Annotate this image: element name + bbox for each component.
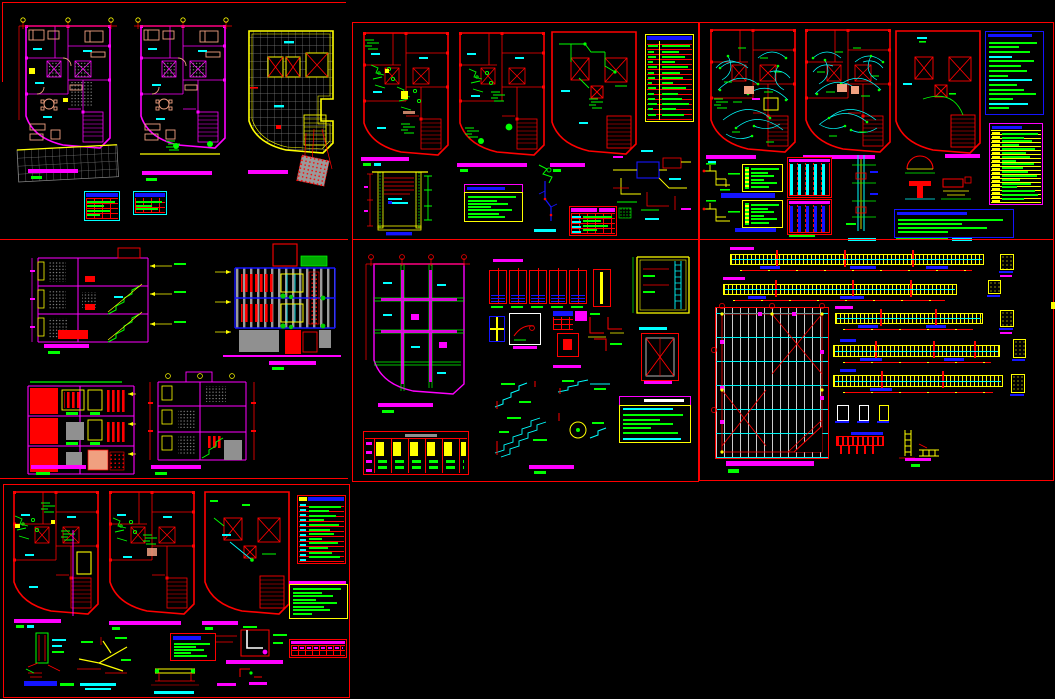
corner-reinforcement-details[interactable] <box>586 313 626 355</box>
schedule-labels-2 <box>378 466 464 469</box>
symbols-legend[interactable] <box>985 31 1044 115</box>
notes-box[interactable] <box>289 584 348 619</box>
notes-box[interactable] <box>894 209 1014 238</box>
table-cells-text <box>583 214 614 233</box>
footing-details-row[interactable] <box>489 268 609 312</box>
section-cut <box>881 371 883 388</box>
footing-caption <box>511 306 523 308</box>
drain-plan-level-1[interactable] <box>9 490 104 618</box>
isometric-riser-detail[interactable] <box>531 161 561 227</box>
table-cells <box>790 164 829 195</box>
strip-cells <box>293 647 343 649</box>
section-cut <box>776 250 778 267</box>
pad-detail[interactable] <box>557 333 579 357</box>
beam-3-title <box>835 306 853 309</box>
main-elevation[interactable] <box>215 242 343 370</box>
feeder-table-1[interactable] <box>787 157 832 198</box>
footing-detail <box>489 270 507 304</box>
plan-scale-label-2 <box>146 178 157 181</box>
framing-overlay <box>708 300 836 466</box>
specs-lines <box>623 412 686 436</box>
crossed-slab-caption <box>644 381 672 384</box>
duct-arc-and-tee-detail[interactable] <box>903 151 937 203</box>
beam-1-label <box>850 266 876 269</box>
cad-canvas <box>0 0 1055 699</box>
footing-caption <box>551 306 563 308</box>
crossed-slab-art <box>642 334 678 380</box>
beam-elevation-2[interactable] <box>723 284 957 295</box>
beam-section-1[interactable] <box>1000 254 1014 270</box>
section-cut <box>875 341 877 358</box>
footing-details-title <box>493 259 523 262</box>
stirrup-scale <box>911 464 920 467</box>
plan-scale-chip-1 <box>27 625 34 628</box>
sheet-foundation-details[interactable] <box>352 239 699 482</box>
stray-mark <box>1051 302 1055 309</box>
section-cut <box>910 280 912 297</box>
section-cut <box>933 341 935 358</box>
mini-schedule-header <box>553 311 573 316</box>
base-plate-detail-3[interactable] <box>879 405 889 421</box>
beam-section-3-caption <box>999 328 1013 330</box>
plan-scale-label-1 <box>16 625 24 628</box>
notes-title-bar <box>897 212 967 215</box>
panelboard-diagram-2[interactable] <box>742 200 783 228</box>
table-note-line <box>789 235 815 237</box>
table-header <box>647 36 692 40</box>
table-cells <box>790 206 829 232</box>
electrical-plan-level-1[interactable] <box>705 28 803 156</box>
joint-caption <box>513 346 537 349</box>
specifications-box[interactable] <box>619 396 691 442</box>
schedule-row-labels <box>366 440 372 472</box>
water-plan-roof[interactable] <box>549 28 639 162</box>
beam-4-dim <box>843 362 991 363</box>
section-1-scale <box>48 351 60 354</box>
drain-plan-roof[interactable] <box>200 488 297 620</box>
pad-core <box>563 339 572 350</box>
joist-detail[interactable] <box>836 436 884 456</box>
beam-5-label <box>870 388 892 391</box>
rear-elevation-title-bar <box>31 465 86 469</box>
cistern-caption <box>639 327 667 330</box>
sheet-electrical-installation[interactable] <box>699 22 1054 240</box>
tank-piping-detail[interactable] <box>611 148 695 226</box>
notes-lines <box>293 587 343 616</box>
table-col2-text <box>662 42 691 119</box>
panel-rows <box>751 203 780 225</box>
panel-caption-2 <box>735 228 776 232</box>
beam-elevation-4[interactable] <box>833 345 1000 357</box>
panelboard-diagram-1[interactable] <box>742 164 783 192</box>
footing-detail <box>529 270 547 304</box>
branch-caption <box>80 683 116 686</box>
section-1-title-bar <box>44 344 89 348</box>
legend-symbols-col <box>300 503 306 561</box>
section-cut <box>775 280 777 297</box>
sheet-border-top <box>0 239 348 240</box>
specs-footer-line <box>623 438 681 440</box>
second-floor-plan[interactable] <box>128 22 240 167</box>
section-cut <box>912 250 914 267</box>
section-cut <box>852 280 854 297</box>
finish-schedule-table-1[interactable] <box>84 191 120 221</box>
beam-3-label <box>926 325 946 328</box>
plan-scale-label-1 <box>31 176 42 179</box>
table-col1-text <box>648 42 658 119</box>
beam-elevation-5[interactable] <box>833 375 1003 387</box>
legend-title-bar <box>467 187 505 190</box>
joint-detail[interactable] <box>509 313 541 345</box>
plan-scale-label-2 <box>112 627 120 630</box>
beam-section-2[interactable] <box>988 280 1001 294</box>
sleeve-caption-bar <box>226 660 283 664</box>
base-plate-caption-3 <box>877 421 889 423</box>
table-cells-text <box>1002 131 1040 202</box>
water-plan-level-1[interactable] <box>360 30 452 160</box>
crossed-slab-detail[interactable] <box>641 333 679 381</box>
service-riser-detail[interactable] <box>844 153 884 237</box>
sheet-border-top <box>2 2 346 3</box>
specs-header-bar <box>644 399 684 402</box>
sheet-architectural-plans[interactable] <box>0 0 348 238</box>
footing-caption <box>531 306 543 308</box>
beam-elevation-3[interactable] <box>835 313 983 324</box>
beam-4-label-top <box>840 339 856 342</box>
beam-section-1-caption <box>999 271 1013 273</box>
stair-detail-3[interactable] <box>493 411 567 459</box>
stair-detail-1[interactable] <box>493 381 541 411</box>
beam-1-label <box>760 266 780 269</box>
table-header <box>86 193 118 197</box>
framing-title-bar <box>726 461 814 466</box>
schedule-header-bar <box>405 434 437 437</box>
section-cut <box>942 371 944 388</box>
beam-4-label <box>944 358 964 361</box>
strip-header <box>291 641 345 644</box>
sleeve-caption-3 <box>249 682 267 685</box>
stirrup-cross-details[interactable] <box>897 428 941 462</box>
stair-detail-2[interactable] <box>556 380 614 397</box>
sheet-drainage-installation[interactable] <box>3 484 350 698</box>
foundation-scale <box>382 410 394 413</box>
roof-plan[interactable] <box>240 25 345 180</box>
sheet-beams-framing[interactable] <box>699 239 1054 481</box>
beam-section-5-caption <box>1010 394 1024 396</box>
base-plate-caption-1 <box>835 421 849 423</box>
feeder-table-2[interactable] <box>787 199 832 235</box>
plan-scale-label-3 <box>205 627 213 630</box>
pad-caption <box>553 365 581 368</box>
beam-2-label <box>748 296 766 299</box>
isometric-caption <box>534 229 556 232</box>
slab-framing-plan[interactable] <box>715 307 829 459</box>
water-plan-level-2[interactable] <box>456 30 548 160</box>
elevation-title-bar <box>269 361 316 365</box>
sleeve-caption-2 <box>217 683 236 686</box>
plan-title-bar-1 <box>28 169 78 173</box>
framing-scale <box>728 469 739 473</box>
legend-box[interactable] <box>464 192 523 222</box>
finish-schedule-table-2[interactable] <box>133 191 167 215</box>
wall-sleeve-detail[interactable] <box>213 626 291 660</box>
sleeve-mini-detail[interactable] <box>236 665 266 681</box>
vent-stack-scale <box>60 683 74 686</box>
section-cut <box>844 250 846 267</box>
joist-legs <box>840 446 880 454</box>
section-cut <box>974 341 976 358</box>
table-header-a <box>571 208 597 212</box>
breaker-strip <box>745 167 749 189</box>
trench-caption <box>154 691 194 694</box>
plan-title-bar-2 <box>142 171 212 175</box>
tie-bar-v <box>496 317 498 341</box>
legend-header-chip <box>299 497 307 501</box>
base-plate-detail-2[interactable] <box>859 405 869 421</box>
plan-scale-label-2 <box>460 169 468 172</box>
plan-title-bar-3 <box>248 170 288 174</box>
foundation-plan[interactable] <box>363 259 475 401</box>
vent-stack-caption <box>24 681 57 686</box>
table-title-bar <box>992 126 1022 129</box>
plan-title-bar-3 <box>202 621 238 625</box>
plan-title-bar-2 <box>457 163 527 167</box>
schedule-sketches <box>376 442 466 456</box>
plan-title-bar-3 <box>945 154 980 158</box>
symbols-legend-table[interactable] <box>297 495 346 564</box>
support-detail[interactable] <box>939 173 975 203</box>
stair-detail-4[interactable] <box>566 418 614 448</box>
sheet-border-left <box>2 2 3 82</box>
beam-section-2-caption <box>987 295 1000 297</box>
rear-elevation-scale <box>36 472 50 475</box>
beam-1-dim <box>740 270 972 271</box>
beam-section-5[interactable] <box>1011 374 1025 393</box>
connection-table[interactable] <box>569 206 617 236</box>
wall-footing-detail[interactable] <box>593 269 611 307</box>
column-schedule-table[interactable] <box>363 431 469 475</box>
beam-4-label <box>860 358 882 361</box>
legend-title-bar <box>988 34 1032 37</box>
specs-body <box>619 405 691 443</box>
legend-text <box>309 503 343 561</box>
small-notes-box[interactable] <box>170 633 216 661</box>
small-notes-header <box>173 636 201 640</box>
wall-footing-bar <box>600 272 603 304</box>
table-row-labels <box>572 214 581 233</box>
legend-lines <box>468 195 518 219</box>
plan-title-bar-1 <box>361 157 409 161</box>
drain-plan-level-2[interactable] <box>106 490 199 618</box>
building-section-2[interactable] <box>148 372 256 474</box>
branch-caption-2 <box>85 688 111 690</box>
base-plate-detail-1[interactable] <box>837 405 849 421</box>
table-header <box>135 193 165 197</box>
specs-title-line <box>623 408 673 410</box>
table-cells-text <box>136 199 163 212</box>
footing-caption <box>571 306 583 308</box>
joint-detail-art <box>510 314 540 344</box>
trench-detail[interactable] <box>149 661 201 687</box>
schedule-strip-table[interactable] <box>289 639 347 658</box>
legend-lines <box>989 39 1040 112</box>
panel-branch-diagram-2[interactable] <box>700 197 745 229</box>
first-floor-plan[interactable] <box>15 22 125 187</box>
joist-detail-caption <box>851 432 883 435</box>
table-header <box>789 159 830 162</box>
notes-lines <box>898 217 1009 235</box>
breaker-strip <box>745 203 749 225</box>
small-notes-lines <box>174 642 212 658</box>
section-cut <box>880 309 882 326</box>
beam-2-label <box>840 296 864 299</box>
beam-3-dim <box>843 329 973 330</box>
beam-section-3[interactable] <box>1000 310 1014 327</box>
sheet-sections-elevations[interactable] <box>0 239 348 480</box>
beam-section-4[interactable] <box>1013 339 1026 358</box>
table-row-labels <box>992 131 1000 202</box>
circuits-load-table[interactable] <box>989 123 1043 205</box>
table-header <box>789 201 830 204</box>
schedule-labels <box>378 460 464 463</box>
stirrup-caption <box>905 458 931 461</box>
cistern-section-detail[interactable] <box>364 166 436 236</box>
sheet-water-installation[interactable] <box>352 22 699 240</box>
branch-fitting-detail[interactable] <box>75 635 137 679</box>
footing-detail <box>569 270 587 304</box>
beam-2-title <box>723 277 745 280</box>
footing-detail <box>549 270 567 304</box>
stairs-title-bar <box>529 465 574 469</box>
mini-schedule-grid <box>553 317 573 330</box>
section-2-scale <box>155 472 167 475</box>
beam-5-label-top <box>840 369 856 372</box>
section-cut <box>935 309 937 326</box>
column-tie-detail[interactable] <box>489 316 505 342</box>
beam-section-3-caption2 <box>1000 332 1012 334</box>
table-col-divider <box>659 41 660 120</box>
elevation-scale <box>272 367 284 370</box>
foundation-title-bar <box>378 403 433 407</box>
beam-3-label <box>858 325 878 328</box>
plan-title-bar-2 <box>109 621 181 625</box>
legend-header <box>308 497 344 501</box>
panel-rows <box>751 167 780 189</box>
stairs-scale <box>534 471 546 474</box>
beam-5-dim <box>843 392 993 393</box>
footing-detail <box>509 270 527 304</box>
beam-elevation-1[interactable] <box>730 254 984 265</box>
joist-hatch <box>836 436 884 446</box>
fixtures-table[interactable] <box>645 34 694 122</box>
plan-title-bar-1 <box>706 155 756 159</box>
base-plate-caption-2 <box>857 421 869 423</box>
beam-section-4-caption <box>1012 359 1025 361</box>
beam-1-title <box>730 247 754 250</box>
electrical-plan-level-2[interactable] <box>802 28 894 156</box>
mini-schedule[interactable] <box>553 311 587 331</box>
beam-1-label <box>926 266 948 269</box>
cistern-structure-detail[interactable] <box>631 249 695 325</box>
beam-section-1-caption2 <box>1000 275 1012 277</box>
building-section-1[interactable] <box>30 246 192 352</box>
section-2-title-bar <box>151 465 201 469</box>
footing-caption <box>491 306 503 308</box>
table-cells-text <box>87 199 116 218</box>
panel-branch-diagram-1[interactable] <box>700 161 745 193</box>
vent-stack-detail[interactable] <box>24 631 76 681</box>
plan-title-bar-1 <box>14 619 61 623</box>
